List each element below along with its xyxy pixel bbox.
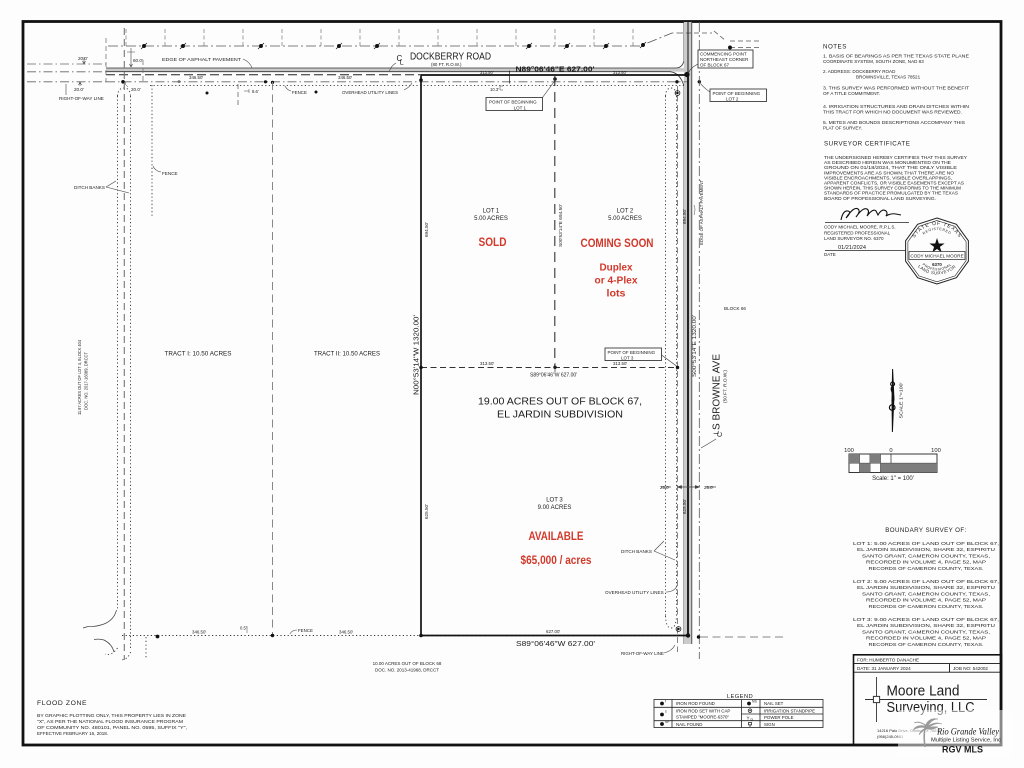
svg-text:25.0': 25.0' bbox=[660, 485, 670, 490]
svg-text:0.5': 0.5' bbox=[240, 626, 247, 631]
svg-text:S89°06'46"W 627.00': S89°06'46"W 627.00' bbox=[516, 639, 596, 648]
svg-text:IRON ROD SET WITH CAP: IRON ROD SET WITH CAP bbox=[676, 708, 730, 713]
svg-text:FENCE: FENCE bbox=[298, 628, 313, 633]
svg-text:313.50': 313.50' bbox=[613, 361, 627, 366]
svg-text:20.0': 20.0' bbox=[78, 56, 88, 61]
svg-text:FENCE: FENCE bbox=[292, 90, 307, 95]
svg-text:NAIL SET: NAIL SET bbox=[764, 701, 784, 706]
svg-text:FENCE: FENCE bbox=[162, 171, 178, 176]
svg-text:EL JARDIN SUBDIVISION: EL JARDIN SUBDIVISION bbox=[497, 410, 623, 421]
svg-text:Moore Land: Moore Land bbox=[887, 683, 960, 700]
svg-text:or 4-Plex: or 4-Plex bbox=[595, 275, 638, 287]
svg-text:OF A TITLE COMMITMENT.: OF A TITLE COMMITMENT. bbox=[823, 91, 880, 96]
svg-text:DOCKBERRY ROAD: DOCKBERRY ROAD bbox=[410, 52, 491, 63]
svg-text:$65,000 / acres: $65,000 / acres bbox=[521, 555, 592, 567]
svg-text:10.00 ACRES OUT OF BLOCK: 10.00 ACRES OUT OF BLOCK 68 bbox=[373, 661, 442, 666]
svg-text:LOT 2: 5.00 ACRES OF LAND: LOT 2: 5.00 ACRES OF LAND OUT OF BLOCK 6… bbox=[853, 579, 999, 584]
svg-text:1. BASIS OF BEARINGS AS P: 1. BASIS OF BEARINGS AS PER THE TEXAS ST… bbox=[823, 54, 969, 59]
svg-text:11.97 ACRES OUT OF LOT 4,: 11.97 ACRES OUT OF LOT 4, BLOCK 404 bbox=[77, 339, 82, 415]
svg-text:RECORDED IN VOLUME 4, PAGE: RECORDED IN VOLUME 4, PAGE 52, MAP bbox=[866, 598, 986, 603]
svg-text:EL JARDIN SUBDIVISION, SHAR: EL JARDIN SUBDIVISION, SHARE 32, ESPIRIT… bbox=[857, 547, 995, 552]
svg-text:EL JARDIN SUBDIVISION, SHAR: EL JARDIN SUBDIVISION, SHARE 32, ESPIRIT… bbox=[857, 585, 995, 590]
svg-text:PLAT OF SURVEY.: PLAT OF SURVEY. bbox=[823, 125, 862, 130]
svg-text:JOB NO: 542002: JOB NO: 542002 bbox=[953, 666, 988, 671]
svg-text:BY GRAPHIC PLOTTING ONLY,: BY GRAPHIC PLOTTING ONLY, THIS PROPERTY … bbox=[37, 713, 186, 718]
svg-text:625.50': 625.50' bbox=[682, 499, 687, 514]
svg-text:OVERHEAD UTILITY LINES: OVERHEAD UTILITY LINES bbox=[342, 90, 398, 95]
svg-text:IRRIGATION STANDPIPE: IRRIGATION STANDPIPE bbox=[764, 708, 815, 713]
svg-text:625.50': 625.50' bbox=[424, 504, 429, 519]
svg-text:N89°06'46"E 627.00': N89°06'46"E 627.00' bbox=[516, 64, 595, 73]
svg-text:OVERHEAD UTILITY LINES: OVERHEAD UTILITY LINES bbox=[605, 590, 664, 595]
svg-text:627.00': 627.00' bbox=[546, 629, 560, 634]
svg-text:4. IRRIGATION STRUCTURES AN: 4. IRRIGATION STRUCTURES AND DRAIN DITCH… bbox=[823, 104, 969, 109]
svg-text:S89°06'46"W 627.00': S89°06'46"W 627.00' bbox=[530, 373, 577, 379]
svg-text:FOR: HUMBERTO DANACHE: FOR: HUMBERTO DANACHE bbox=[857, 658, 919, 663]
svg-text:RECORDED IN VOLUME 4, PAGE: RECORDED IN VOLUME 4, PAGE 52, MAP bbox=[866, 560, 986, 565]
svg-text:NS: NS bbox=[752, 700, 757, 704]
svg-text:L: L bbox=[400, 60, 404, 67]
svg-text:"X", AS PER THE NATIONAL: "X", AS PER THE NATIONAL FLOOD INSURANCE… bbox=[37, 719, 183, 724]
svg-text:NAIL FOUND: NAIL FOUND bbox=[676, 722, 702, 727]
svg-text:RECORDS OF CAMERON COUNTY,: RECORDS OF CAMERON COUNTY, TEXAS. bbox=[869, 604, 984, 609]
svg-text:S00°53'14"E 1320.00': S00°53'14"E 1320.00' bbox=[692, 315, 698, 377]
svg-text:LOT 1: 5.00 ACRES OF LAND: LOT 1: 5.00 ACRES OF LAND OUT OF BLOCK 6… bbox=[853, 541, 999, 546]
svg-text:EDGE OF ASPHALT PAVEMENT: EDGE OF ASPHALT PAVEMENT bbox=[699, 180, 704, 245]
svg-text:10.3': 10.3' bbox=[490, 87, 499, 92]
svg-text:N00°53'14"W 1320.00': N00°53'14"W 1320.00' bbox=[412, 314, 421, 395]
svg-text:01/21/2024: 01/21/2024 bbox=[838, 245, 866, 251]
svg-text:6370: 6370 bbox=[932, 262, 942, 267]
svg-text:100: 100 bbox=[931, 448, 941, 454]
svg-text:694.50': 694.50' bbox=[682, 209, 687, 224]
svg-text:5.00 ACRES: 5.00 ACRES bbox=[474, 216, 508, 222]
svg-text:BOARD OF PROFESSIONAL LAND: BOARD OF PROFESSIONAL LAND SURVEYING. bbox=[824, 196, 936, 201]
svg-text:RECORDS OF CAMERON COUNTY,: RECORDS OF CAMERON COUNTY, TEXAS. bbox=[869, 642, 984, 647]
svg-text:19.00 ACRES OUT OF BLOCK: 19.00 ACRES OUT OF BLOCK 67, bbox=[478, 397, 642, 408]
svg-text:DOC. NO. 2017-16089, DRCCT: DOC. NO. 2017-16089, DRCCT bbox=[84, 352, 89, 410]
svg-text:TRACT II: 10.50 ACRES: TRACT II: 10.50 ACRES bbox=[314, 351, 380, 358]
svg-text:NORTHEAST CORNER: NORTHEAST CORNER bbox=[700, 57, 749, 62]
svg-text:LOT 1: LOT 1 bbox=[483, 209, 500, 215]
svg-text:s: s bbox=[665, 710, 667, 714]
svg-text:IRON ROD FOUND: IRON ROD FOUND bbox=[676, 701, 715, 706]
svg-text:EL JARDIN SUBDIVISION, SHAR: EL JARDIN SUBDIVISION, SHARE 32, ESPIRIT… bbox=[857, 623, 995, 628]
svg-text:(80 FT. R.O.W.): (80 FT. R.O.W.) bbox=[431, 62, 462, 67]
svg-text:OF COMMUNITY NO. 480101, P: OF COMMUNITY NO. 480101, PANEL NO. 0595,… bbox=[37, 725, 187, 730]
svg-text:NOTES: NOTES bbox=[823, 44, 847, 51]
svg-text:346.50': 346.50' bbox=[189, 75, 203, 80]
svg-text:20.0': 20.0' bbox=[74, 87, 84, 92]
svg-text:SCALE 1"=100': SCALE 1"=100' bbox=[899, 382, 905, 418]
svg-text:S00'53'14"E 694.50': S00'53'14"E 694.50' bbox=[558, 204, 564, 247]
svg-text:BLOCK 66: BLOCK 66 bbox=[724, 306, 746, 311]
svg-text:OF BLOCK 67: OF BLOCK 67 bbox=[700, 63, 730, 68]
svg-text:Rio Grande Valley: Rio Grande Valley bbox=[936, 728, 1000, 738]
svg-text:5. METES AND BOUNDS DESCRI: 5. METES AND BOUNDS DESCRIPTIONS ACCOMPA… bbox=[823, 120, 965, 125]
svg-text:RECORDS OF CAMERON COUNTY,: RECORDS OF CAMERON COUNTY, TEXAS. bbox=[869, 566, 984, 571]
svg-text:313.50': 313.50' bbox=[613, 70, 627, 75]
svg-text:S BROWNE AVE: S BROWNE AVE bbox=[711, 354, 723, 430]
svg-text:346.50': 346.50' bbox=[339, 630, 353, 635]
svg-text:POWER POLE: POWER POLE bbox=[764, 715, 794, 720]
svg-text:LOT 3: LOT 3 bbox=[621, 356, 634, 361]
svg-text:RGV MLS: RGV MLS bbox=[942, 745, 983, 756]
svg-text:25.0': 25.0' bbox=[704, 485, 714, 490]
svg-text:LOT 3: 9.00 ACRES OF LAND: LOT 3: 9.00 ACRES OF LAND OUT OF BLOCK 6… bbox=[853, 617, 999, 622]
svg-text:STAMPED "MOORE-6370": STAMPED "MOORE-6370" bbox=[676, 715, 729, 720]
svg-text:BOUNDARY SURVEY OF:: BOUNDARY SURVEY OF: bbox=[885, 527, 966, 534]
svg-text:DITCH BANKS: DITCH BANKS bbox=[74, 185, 105, 190]
svg-text:lots: lots bbox=[607, 288, 626, 300]
svg-text:CODY MICHAEL MOORE, R.P.L.S: CODY MICHAEL MOORE, R.P.L.S. bbox=[824, 225, 896, 230]
svg-text:3. THIS SURVEY WAS PERFORM: 3. THIS SURVEY WAS PERFORMED WITHOUT THE… bbox=[823, 86, 969, 91]
svg-text:L: L bbox=[714, 431, 721, 435]
svg-text:DITCH BANKS: DITCH BANKS bbox=[621, 549, 652, 554]
svg-text:LEGEND: LEGEND bbox=[727, 694, 753, 700]
svg-text:Scale: 1" = 100': Scale: 1" = 100' bbox=[872, 476, 914, 482]
svg-text:LOT 3: LOT 3 bbox=[546, 498, 563, 504]
svg-text:BROWNSVILLE, TEXAS 78521: BROWNSVILLE, TEXAS 78521 bbox=[856, 74, 921, 79]
svg-text:100: 100 bbox=[844, 448, 854, 454]
svg-text:LAND SURVEYOR NO. 6370: LAND SURVEYOR NO. 6370 bbox=[824, 236, 884, 241]
svg-text:2. ADDRESS: DOCKBERRY: 2. ADDRESS: DOCKBERRY ROAD bbox=[823, 69, 896, 74]
svg-text:RECORDED IN VOLUME 4, PAGE: RECORDED IN VOLUME 4, PAGE 52, MAP bbox=[866, 636, 986, 641]
svg-text:LOT 2: LOT 2 bbox=[726, 97, 739, 102]
svg-text:SANTO GRANT, CAMERON COUNTY: SANTO GRANT, CAMERON COUNTY, TEXAS, bbox=[862, 553, 990, 558]
svg-text:DOC. NO. 2013-41968, DRCCT: DOC. NO. 2013-41968, DRCCT bbox=[375, 668, 439, 673]
svg-text:313.50': 313.50' bbox=[480, 70, 494, 75]
svg-text:FLOOD ZONE: FLOOD ZONE bbox=[37, 700, 87, 707]
svg-text:RIGHT-OF-WAY LINE: RIGHT-OF-WAY LINE bbox=[59, 96, 104, 101]
svg-text:5.00 ACRES: 5.00 ACRES bbox=[608, 216, 642, 222]
svg-text:NF: NF bbox=[665, 720, 670, 724]
svg-text:Multiple Listing Service, Inc: Multiple Listing Service, Inc bbox=[931, 738, 1001, 744]
svg-text:EFFECTIVE FEBRUARY 16, 2018: EFFECTIVE FEBRUARY 16, 2018. bbox=[37, 731, 108, 736]
svg-text:POINT OF BEGINNING: POINT OF BEGINNING bbox=[713, 91, 761, 96]
svg-text:AVAILABLE: AVAILABLE bbox=[529, 531, 584, 543]
svg-text:313.50': 313.50' bbox=[480, 361, 494, 366]
svg-text:60.0': 60.0' bbox=[133, 58, 143, 63]
svg-text:SOLD: SOLD bbox=[479, 237, 507, 249]
svg-text:LOT 2: LOT 2 bbox=[617, 209, 634, 215]
svg-text:0: 0 bbox=[889, 448, 892, 454]
svg-text:DATE: DATE bbox=[824, 252, 836, 257]
svg-text:SURVEYOR CERTIFICATE: SURVEYOR CERTIFICATE bbox=[824, 141, 910, 148]
svg-text:8.6': 8.6' bbox=[252, 89, 259, 94]
svg-text:COORDINATE SYSTEM, SOUTH ZO: COORDINATE SYSTEM, SOUTH ZONE, NAD 83 bbox=[823, 59, 924, 64]
svg-text:20.0': 20.0' bbox=[131, 87, 141, 92]
svg-text:Duplex: Duplex bbox=[600, 262, 633, 274]
svg-text:Y: Y bbox=[747, 716, 750, 721]
svg-text:THIS TRACT FOR WHICH NO D: THIS TRACT FOR WHICH NO DOCUMENT WAS REV… bbox=[823, 109, 962, 114]
svg-text:EDGE OF ASPHALT PAVEMENT: EDGE OF ASPHALT PAVEMENT bbox=[162, 57, 241, 62]
svg-text:LOT 1: LOT 1 bbox=[514, 106, 527, 111]
svg-text:TRACT I: 10.50 ACRES: TRACT I: 10.50 ACRES bbox=[165, 351, 232, 358]
svg-text:346.50': 346.50' bbox=[192, 630, 206, 635]
svg-text:f: f bbox=[665, 700, 666, 704]
svg-text:346.50': 346.50' bbox=[338, 75, 352, 80]
svg-text:9.00 ACRES: 9.00 ACRES bbox=[538, 505, 572, 511]
svg-text:SANTO GRANT, CAMERON COUNTY: SANTO GRANT, CAMERON COUNTY, TEXAS, bbox=[862, 591, 990, 596]
svg-text:SIGN: SIGN bbox=[764, 722, 775, 727]
svg-text:COMMENCING POINT: COMMENCING POINT bbox=[700, 52, 747, 57]
svg-text:DATE: 31 JANUARY 2024: DATE: 31 JANUARY 2024 bbox=[857, 666, 911, 671]
svg-text:COMING SOON: COMING SOON bbox=[581, 238, 654, 250]
svg-text:REGISTERED PROFESSIONAL: REGISTERED PROFESSIONAL bbox=[824, 230, 891, 235]
svg-text:POINT OF BEGINNING: POINT OF BEGINNING bbox=[489, 100, 537, 105]
svg-text:RIGHT-OF-WAY LINE: RIGHT-OF-WAY LINE bbox=[621, 651, 664, 656]
svg-text:694.50': 694.50' bbox=[424, 222, 429, 237]
svg-text:SANTO GRANT, CAMERON COUNTY: SANTO GRANT, CAMERON COUNTY, TEXAS, bbox=[862, 629, 990, 634]
svg-text:CODY MICHAEL MOORE: CODY MICHAEL MOORE bbox=[910, 254, 963, 259]
svg-text:POINT OF BEGINNING: POINT OF BEGINNING bbox=[608, 350, 656, 355]
svg-text:(50 FT. R.O.W.): (50 FT. R.O.W.) bbox=[723, 369, 728, 403]
